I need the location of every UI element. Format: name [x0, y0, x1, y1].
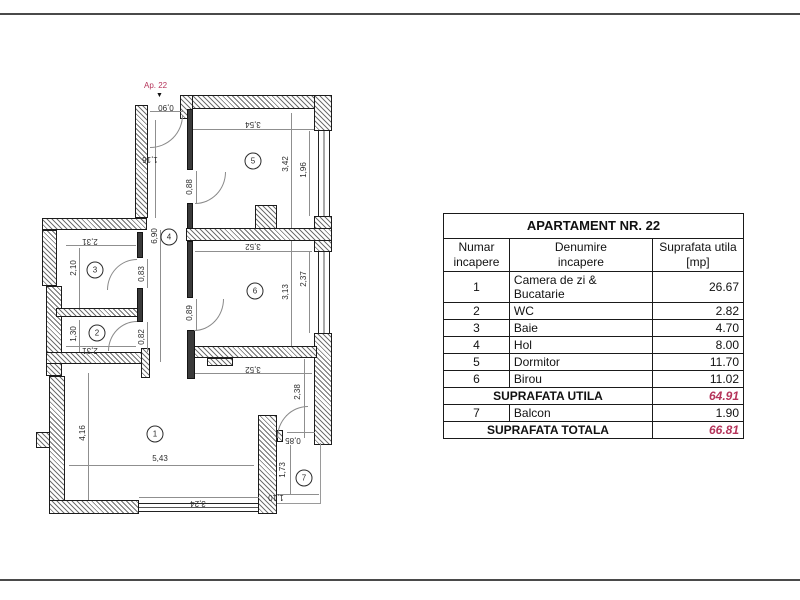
total-value-cell: 64.91 — [652, 388, 743, 405]
room-number-badge: 3 — [87, 262, 104, 279]
dimension-label: 0,88 — [186, 179, 194, 195]
floor-plan: Ap. 22 ▼ 0,903,541,163,421,960,886,902,3… — [0, 0, 420, 600]
table-cell: 26.67 — [652, 272, 743, 303]
dimension-line — [304, 359, 305, 438]
dimension-label: 1,16 — [142, 155, 158, 163]
table-cell: 11.02 — [652, 371, 743, 388]
dimension-line — [195, 251, 312, 252]
wall — [187, 109, 193, 170]
table-cell: 4.70 — [652, 320, 743, 337]
wall — [137, 232, 143, 258]
total-label-cell: SUPRAFATA TOTALA — [444, 422, 653, 439]
wall — [49, 376, 65, 506]
door-arc — [194, 299, 224, 331]
room-number-badge: 4 — [161, 229, 178, 246]
table-cell: 4 — [444, 337, 510, 354]
wall — [207, 358, 233, 366]
wall — [255, 205, 277, 229]
room-number-badge: 7 — [296, 470, 313, 487]
dimension-line — [196, 171, 197, 203]
wall — [56, 308, 141, 317]
apartment-entrance-label: Ap. 22 — [144, 81, 167, 90]
wall — [141, 348, 150, 378]
wall — [187, 203, 193, 229]
table-cell: Baie — [509, 320, 652, 337]
wall — [186, 228, 332, 241]
dimension-line — [196, 299, 197, 331]
room-number-badge: 2 — [89, 325, 106, 342]
dimension-label: 0,83 — [138, 266, 146, 282]
table-cell: WC — [509, 303, 652, 320]
wall — [187, 330, 195, 379]
table-cell: 1 — [444, 272, 510, 303]
table-row: 3Baie4.70 — [444, 320, 744, 337]
table-cell: 3 — [444, 320, 510, 337]
table-header-row: Numar incapere Denumire incapere Suprafa… — [444, 239, 744, 272]
wall — [314, 95, 332, 131]
table-cell: 1.90 — [652, 405, 743, 422]
dimension-line — [309, 131, 310, 216]
table-cell: 2.82 — [652, 303, 743, 320]
table-cell: Camera de zi & Bucatarie — [509, 272, 652, 303]
table-row: 4Hol8.00 — [444, 337, 744, 354]
dimension-label: 2,38 — [294, 384, 302, 400]
table-cell: 2 — [444, 303, 510, 320]
dimension-label: 3,54 — [245, 120, 261, 128]
entrance-arrow-icon: ▼ — [156, 92, 163, 99]
table-cell: Balcon — [509, 405, 652, 422]
table-row: 7Balcon1.90 — [444, 405, 744, 422]
dimension-line — [287, 432, 315, 433]
door-arc — [195, 172, 226, 204]
dimension-label: 2,31 — [82, 346, 98, 354]
wall — [42, 218, 147, 230]
dimension-label: 0,85 — [285, 436, 301, 444]
dimension-line — [291, 241, 292, 346]
dimension-label: 3,52 — [245, 365, 261, 373]
room-number-badge: 6 — [247, 283, 264, 300]
dimension-line — [291, 113, 292, 228]
wall — [36, 432, 50, 448]
dimension-label: 1,30 — [70, 326, 78, 342]
door-arc — [107, 259, 137, 290]
table-cell: 11.70 — [652, 354, 743, 371]
wall — [187, 241, 193, 298]
dimension-label: 1,10 — [268, 493, 284, 501]
dimension-line — [66, 245, 136, 246]
dimension-label: 2,31 — [82, 237, 98, 245]
dimension-line — [139, 497, 259, 498]
dimension-label: 6,90 — [151, 228, 159, 244]
dimension-label: 3,52 — [245, 242, 261, 250]
col-header-suprafata: Suprafata utila [mp] — [652, 239, 743, 272]
wall — [137, 288, 143, 322]
dimension-label: 3,42 — [282, 156, 290, 172]
dimension-label: 0,82 — [138, 329, 146, 345]
wall — [49, 500, 139, 514]
dimension-label: 2,37 — [300, 271, 308, 287]
col-header-numar: Numar incapere — [444, 239, 510, 272]
table-row: 6Birou11.02 — [444, 371, 744, 388]
dimension-line — [147, 259, 148, 288]
window — [318, 252, 330, 333]
dimension-line — [309, 252, 310, 333]
table-cell: Birou — [509, 371, 652, 388]
dimension-label: 3,24 — [190, 499, 206, 507]
dimension-label: 1,96 — [300, 162, 308, 178]
dimension-line — [160, 230, 161, 362]
dimension-line — [155, 120, 156, 218]
window — [318, 131, 330, 216]
dimension-label: 2,10 — [70, 260, 78, 276]
table-cell: 5 — [444, 354, 510, 371]
table-title: APARTAMENT NR. 22 — [444, 214, 744, 239]
total-label-cell: SUPRAFATA UTILA — [444, 388, 653, 405]
dimension-line — [66, 346, 136, 347]
area-table: APARTAMENT NR. 22 Numar incapere Denumir… — [443, 213, 744, 439]
table-cell: 7 — [444, 405, 510, 422]
table-cell: Dormitor — [509, 354, 652, 371]
wall — [42, 230, 57, 286]
dimension-line — [147, 322, 148, 352]
table-cell: 6 — [444, 371, 510, 388]
wall — [180, 95, 332, 109]
table-total-row: SUPRAFATA TOTALA66.81 — [444, 422, 744, 439]
table-total-row: SUPRAFATA UTILA64.91 — [444, 388, 744, 405]
room-number-badge: 1 — [147, 426, 164, 443]
dimension-label: 0,89 — [186, 305, 194, 321]
dimension-line — [88, 373, 89, 500]
dimension-line — [79, 248, 80, 308]
table-cell: Hol — [509, 337, 652, 354]
dimension-line — [69, 465, 254, 466]
dimension-line — [79, 320, 80, 352]
dimension-label: 0,90 — [158, 103, 174, 111]
table-cell: 8.00 — [652, 337, 743, 354]
room-number-badge: 5 — [245, 153, 262, 170]
drawing-page: Ap. 22 ▼ 0,903,541,163,421,960,886,902,3… — [0, 0, 800, 600]
dimension-label: 3,13 — [282, 284, 290, 300]
wall — [46, 352, 150, 364]
total-value-cell: 66.81 — [652, 422, 743, 439]
table-row: 1Camera de zi & Bucatarie26.67 — [444, 272, 744, 303]
dimension-line — [193, 129, 314, 130]
wall — [193, 346, 317, 358]
dimension-label: 4,16 — [79, 425, 87, 441]
table-row: 5Dormitor11.70 — [444, 354, 744, 371]
col-header-denumire: Denumire incapere — [509, 239, 652, 272]
table-row: 2WC2.82 — [444, 303, 744, 320]
dimension-label: 1,73 — [279, 462, 287, 478]
dimension-line — [290, 445, 291, 495]
dimension-label: 5,43 — [152, 455, 168, 463]
